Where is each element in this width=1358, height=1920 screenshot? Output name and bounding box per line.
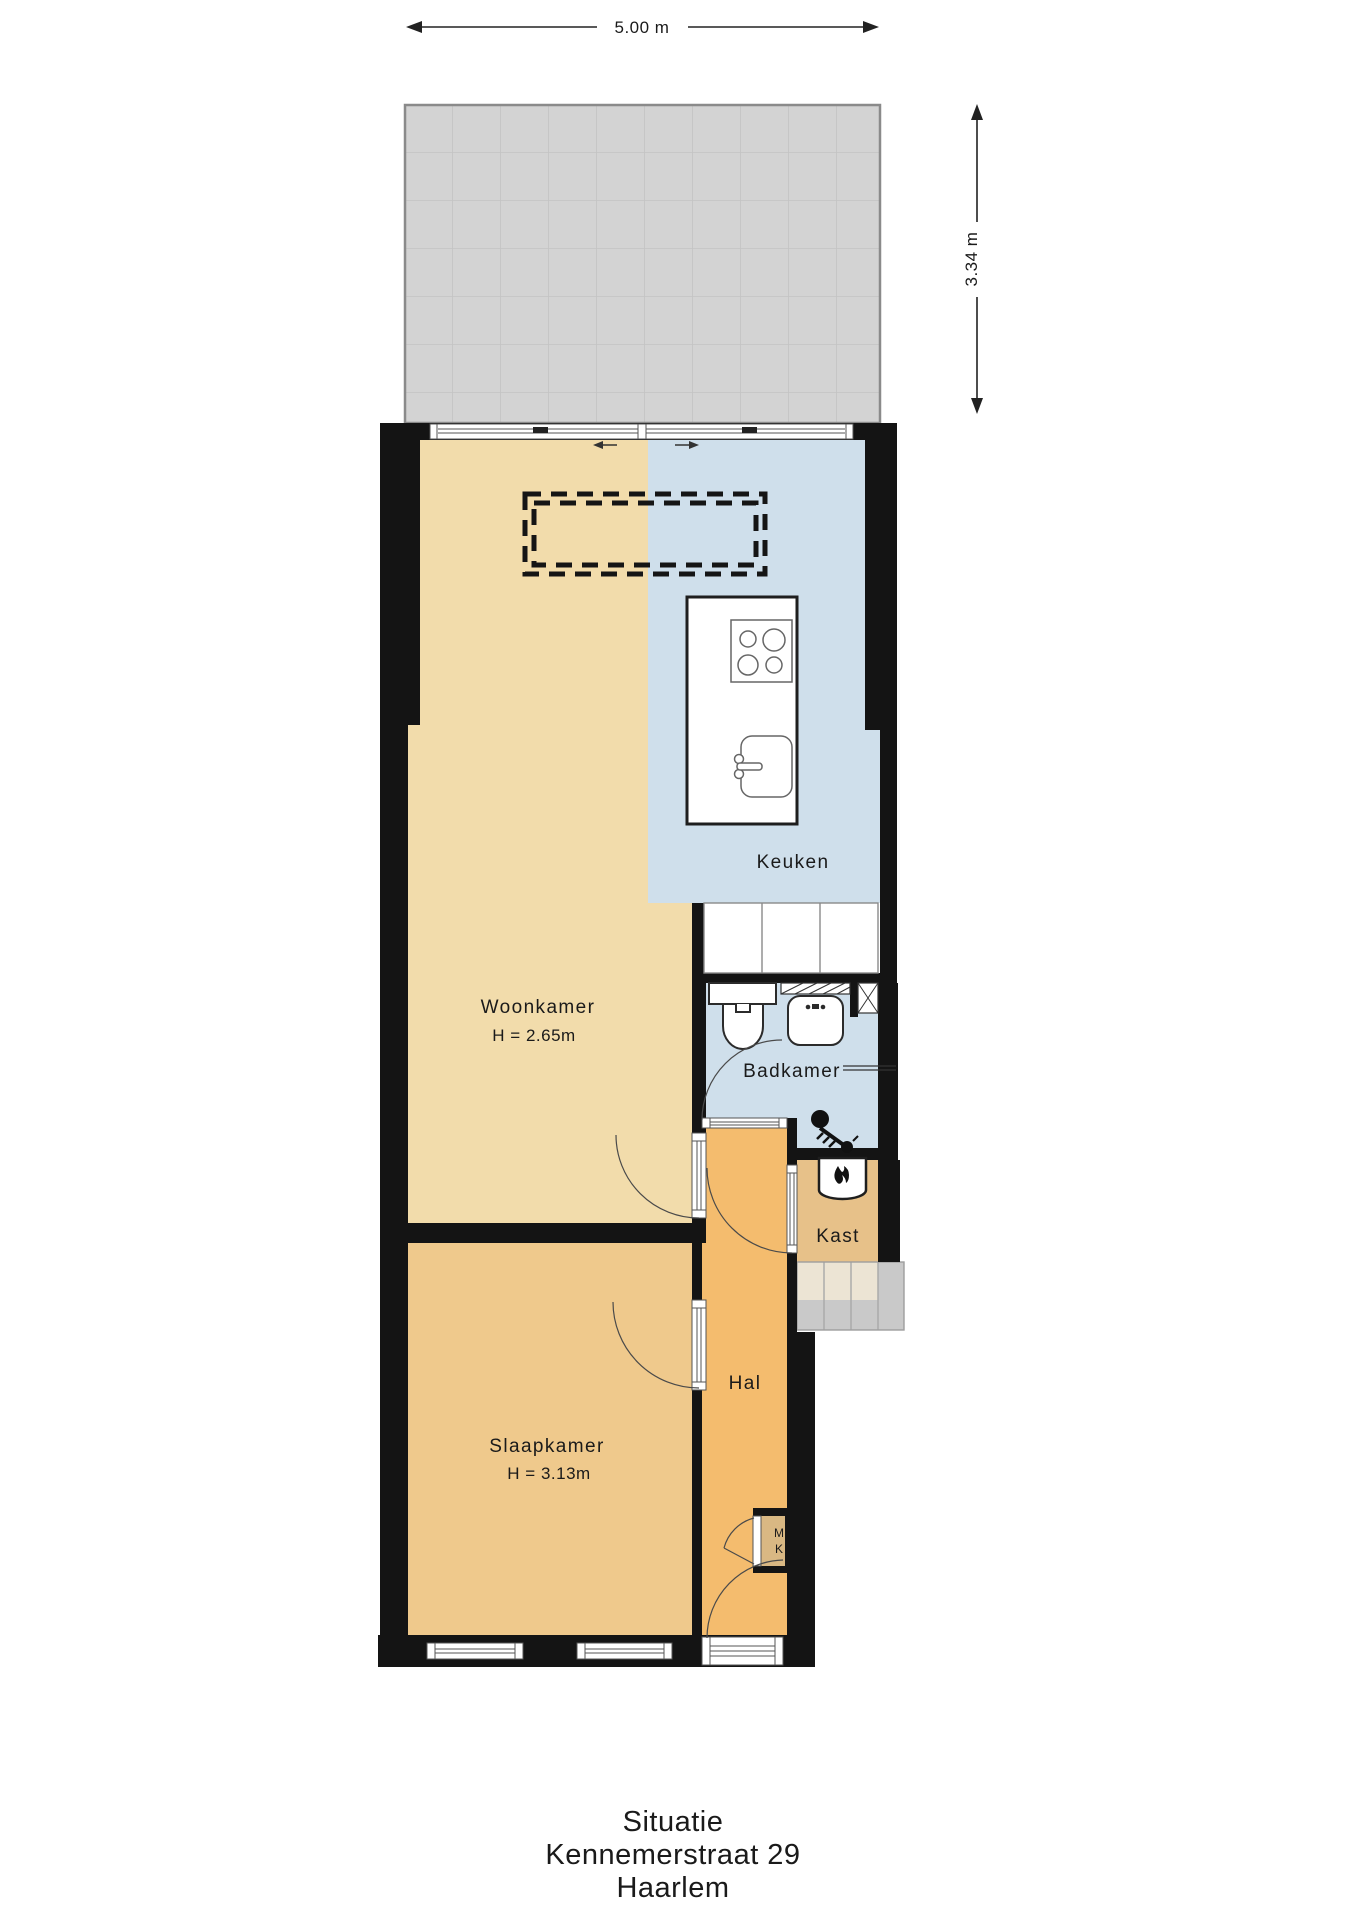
slaapkamer-label: Slaapkamer bbox=[489, 1436, 604, 1457]
caption-city: Haarlem bbox=[616, 1872, 729, 1904]
door-handle-icon bbox=[533, 427, 548, 433]
caption-address: Kennemerstraat 29 bbox=[545, 1839, 800, 1871]
terrace-tiles bbox=[405, 105, 880, 423]
slaapkamer-height-label: H = 3.13m bbox=[507, 1464, 590, 1483]
floorplan-page: 5.00 m 3.34 m bbox=[0, 0, 1358, 1920]
hal-label: Hal bbox=[729, 1373, 762, 1394]
door-handle-icon bbox=[742, 427, 757, 433]
floorplan-drawing: 5.00 m 3.34 m bbox=[0, 0, 1358, 1920]
boiler-icon bbox=[819, 1158, 866, 1199]
depth-dimension: 3.34 m bbox=[962, 104, 983, 414]
kast-label: Kast bbox=[816, 1226, 860, 1247]
depth-dimension-label: 3.34 m bbox=[962, 232, 981, 287]
caption-situatie: Situatie bbox=[623, 1806, 724, 1838]
keuken-label: Keuken bbox=[757, 852, 830, 873]
slaapkamer-window-left bbox=[427, 1643, 523, 1659]
arrowhead-left-icon bbox=[406, 21, 422, 33]
arrowhead-down-icon bbox=[971, 398, 983, 414]
meterkast-label-k: K bbox=[775, 1542, 783, 1556]
sink-icon bbox=[735, 736, 793, 797]
terrace bbox=[405, 105, 880, 423]
stairs bbox=[797, 1262, 904, 1330]
kitchen-island bbox=[687, 597, 797, 824]
arrowhead-up-icon bbox=[971, 104, 983, 120]
woonkamer-height-label: H = 2.65m bbox=[492, 1026, 575, 1045]
stove-icon bbox=[731, 620, 792, 682]
badkamer-label: Badkamer bbox=[743, 1061, 841, 1082]
washbasin-icon bbox=[788, 996, 843, 1045]
kitchen-counter-units bbox=[704, 903, 878, 973]
slaapkamer-window-right bbox=[577, 1643, 672, 1659]
arrowhead-right-icon bbox=[863, 21, 879, 33]
caption: Situatie Kennemerstraat 29 Haarlem bbox=[545, 1806, 800, 1904]
meterkast-label-m: M bbox=[774, 1526, 784, 1540]
width-dimension-label: 5.00 m bbox=[615, 18, 670, 37]
width-dimension: 5.00 m bbox=[406, 18, 879, 37]
woonkamer-label: Woonkamer bbox=[481, 997, 596, 1018]
